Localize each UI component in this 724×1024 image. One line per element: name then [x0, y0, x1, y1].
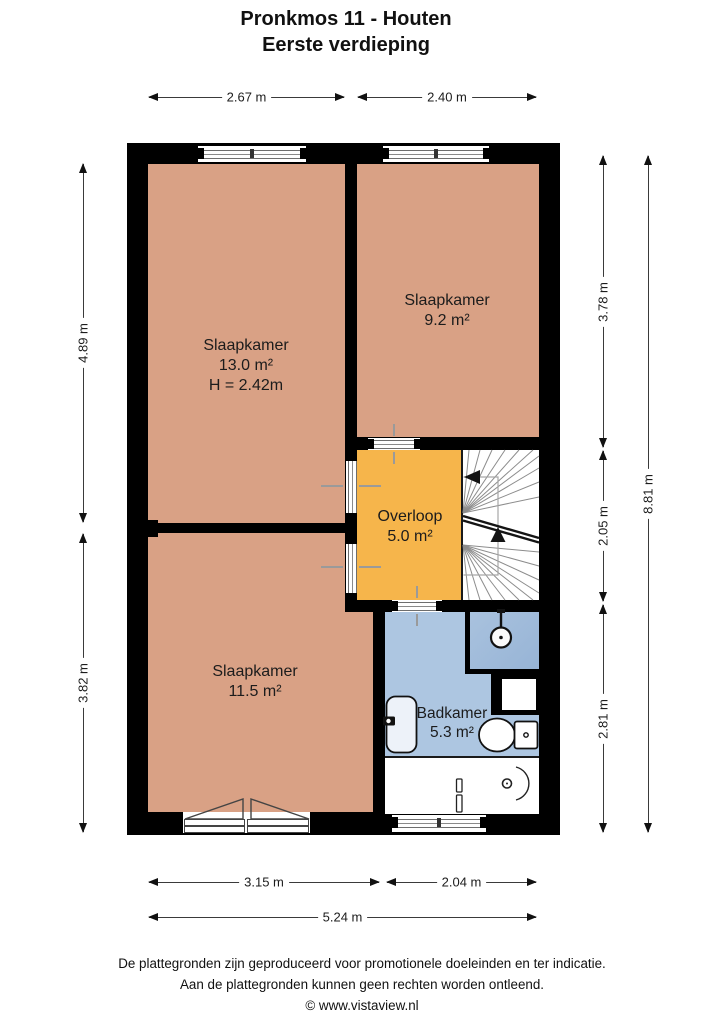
- label-bedroom-right: Slaapkamer 9.2 m²: [347, 291, 547, 331]
- room-area: 13.0 m²: [146, 356, 346, 376]
- door-leaf: [394, 602, 440, 611]
- dim-label: 4.89 m: [76, 318, 91, 368]
- door-sill: [184, 826, 245, 833]
- window: [198, 146, 306, 162]
- door-tick: [393, 424, 395, 436]
- bathtub-edge-line: [385, 756, 539, 758]
- door-bathroom: [392, 600, 442, 612]
- window-jamb: [392, 817, 398, 828]
- window-jamb: [383, 148, 389, 159]
- dim-bottom-total: 5.24 m: [148, 909, 537, 925]
- dim-label: 8.81 m: [641, 469, 656, 519]
- room-area: 5.0 m²: [357, 527, 463, 547]
- dim-left-lower: 3.82 m: [75, 533, 91, 833]
- dim-label: 2.67 m: [222, 90, 272, 105]
- door-tick: [416, 614, 418, 626]
- dim-label: 2.40 m: [422, 90, 472, 105]
- wall-stub: [148, 520, 158, 537]
- door-jamb: [346, 456, 357, 461]
- door-jamb: [392, 601, 398, 611]
- dim-bottom-left: 3.15 m: [148, 874, 380, 890]
- disclaimer: De plattegronden zijn geproduceerd voor …: [0, 953, 724, 1016]
- dim-label: 3.82 m: [76, 658, 91, 708]
- dim-right-lower: 2.81 m: [595, 604, 611, 833]
- copyright: © www.vistaview.nl: [0, 995, 724, 1016]
- window-mullion: [437, 818, 441, 827]
- dim-label: 3.78 m: [596, 277, 611, 327]
- door-tick: [321, 485, 343, 487]
- bathtub-area: [385, 758, 539, 814]
- dim-top-right: 2.40 m: [357, 89, 537, 105]
- dim-bottom-right: 2.04 m: [386, 874, 537, 890]
- label-bathroom: Badkamer 5.3 m²: [392, 704, 512, 742]
- dim-label: 2.04 m: [437, 875, 487, 890]
- door-tick: [393, 452, 395, 464]
- floorplan-page: Pronkmos 11 - Houten Eerste verdieping: [0, 0, 724, 1024]
- room-area: 11.5 m²: [155, 682, 355, 702]
- label-bedroom-bottom: Slaapkamer 11.5 m²: [155, 662, 355, 702]
- room-area: 9.2 m²: [347, 311, 547, 331]
- room-name: Slaapkamer: [146, 336, 346, 356]
- shower-area: [470, 612, 539, 669]
- dim-right-middle: 2.05 m: [595, 450, 611, 602]
- room-name: Badkamer: [392, 704, 512, 723]
- door-jamb: [436, 601, 442, 611]
- door-leaf: [348, 542, 357, 595]
- disclaimer-line: De plattegronden zijn geproduceerd voor …: [0, 953, 724, 974]
- room-name: Overloop: [357, 507, 463, 527]
- dim-label: 2.05 m: [596, 501, 611, 551]
- door-tick: [321, 566, 343, 568]
- door-sill: [247, 819, 309, 826]
- label-landing: Overloop 5.0 m²: [357, 507, 463, 547]
- door-jamb: [414, 439, 420, 449]
- page-title: Pronkmos 11 - Houten Eerste verdieping: [0, 6, 692, 58]
- door-bedroom-large: [346, 457, 357, 517]
- dim-label: 2.81 m: [596, 694, 611, 744]
- room-area: 5.3 m²: [392, 723, 512, 742]
- stairs-area: [463, 450, 539, 600]
- dim-right-total: 8.81 m: [640, 155, 656, 833]
- door-leaf: [348, 459, 357, 515]
- door-jamb: [346, 593, 357, 598]
- door-bedroom-bottom: [346, 540, 357, 597]
- window-mullion: [434, 149, 438, 158]
- window-jamb: [480, 817, 486, 828]
- room-name: Slaapkamer: [155, 662, 355, 682]
- dim-label: 3.15 m: [239, 875, 289, 890]
- dim-left-upper: 4.89 m: [75, 163, 91, 523]
- label-bedroom-large: Slaapkamer 13.0 m² H = 2.42m: [146, 336, 346, 396]
- door-bedroom-right: [368, 438, 420, 450]
- window: [392, 815, 486, 832]
- shower-partition-left: [465, 612, 470, 674]
- room-bedroom-bottom-ext: [345, 612, 373, 812]
- door-sill: [247, 826, 309, 833]
- door-leaf: [370, 440, 418, 449]
- door-jamb: [368, 439, 374, 449]
- window-jamb: [300, 148, 306, 159]
- window: [383, 146, 489, 162]
- door-sill: [184, 819, 245, 826]
- window-jamb: [198, 148, 204, 159]
- door-tick: [359, 566, 381, 568]
- door-tick: [416, 586, 418, 598]
- room-name: Slaapkamer: [347, 291, 547, 311]
- window-jamb: [483, 148, 489, 159]
- title-floor: Eerste verdieping: [0, 32, 692, 58]
- dim-top-left: 2.67 m: [148, 89, 345, 105]
- door-tick: [359, 485, 381, 487]
- dim-right-upper: 3.78 m: [595, 155, 611, 448]
- title-address: Pronkmos 11 - Houten: [0, 6, 692, 32]
- door-jamb: [346, 539, 357, 544]
- room-ceiling-height: H = 2.42m: [146, 376, 346, 396]
- door-jamb: [346, 513, 357, 518]
- dim-label: 5.24 m: [318, 910, 368, 925]
- disclaimer-line: Aan de plattegronden kunnen geen rechten…: [0, 974, 724, 995]
- window-mullion: [250, 149, 254, 158]
